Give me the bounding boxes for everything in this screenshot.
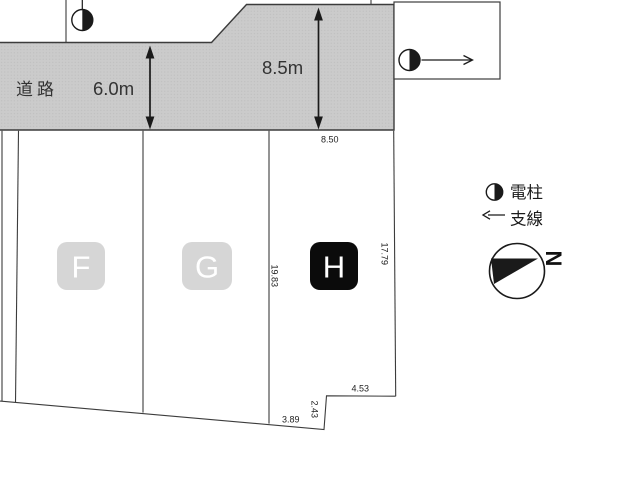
lot-boundary-south — [0, 396, 396, 430]
lot-g-badge[interactable]: G — [182, 242, 232, 290]
road-label: 道路 — [16, 80, 58, 99]
dim-step-2-43: 2.43 — [310, 401, 320, 419]
dim-south-4-53: 4.53 — [352, 384, 370, 394]
compass-icon: N — [490, 244, 567, 299]
road-width-8-5m-label: 8.5m — [262, 57, 303, 78]
legend-pole-label: 電柱 — [510, 183, 543, 202]
lot-boundary-f-west — [16, 131, 19, 403]
lot-g-label: G — [195, 250, 219, 285]
compass-north-label: N — [541, 251, 566, 267]
lot-h-badge[interactable]: H — [310, 242, 358, 290]
dim-side-17-79: 17.79 — [380, 243, 390, 266]
road-width-6m-label: 6.0m — [93, 78, 134, 99]
utility-pole-icon-east — [399, 50, 420, 71]
lot-h-label: H — [323, 250, 345, 285]
lot-boundary-h-east — [394, 131, 396, 397]
site-plan: 道路 6.0m 8.5m F G H 8.50 19.83 17.79 3.89… — [0, 0, 640, 480]
site-plan-drawing: 道路 6.0m 8.5m F G H 8.50 19.83 17.79 3.89… — [0, 0, 640, 480]
dim-side-19-83: 19.83 — [270, 265, 280, 288]
dim-south-3-89: 3.89 — [282, 415, 300, 425]
dim-frontage-8-50: 8.50 — [321, 135, 339, 145]
legend-pole-icon — [486, 184, 502, 200]
legend-wire-icon — [483, 211, 505, 219]
lot-f-label: F — [72, 250, 91, 285]
lot-f-badge[interactable]: F — [57, 242, 105, 290]
legend-wire-label: 支線 — [510, 210, 543, 229]
road-area — [0, 5, 394, 131]
utility-pole-icon — [72, 10, 93, 31]
